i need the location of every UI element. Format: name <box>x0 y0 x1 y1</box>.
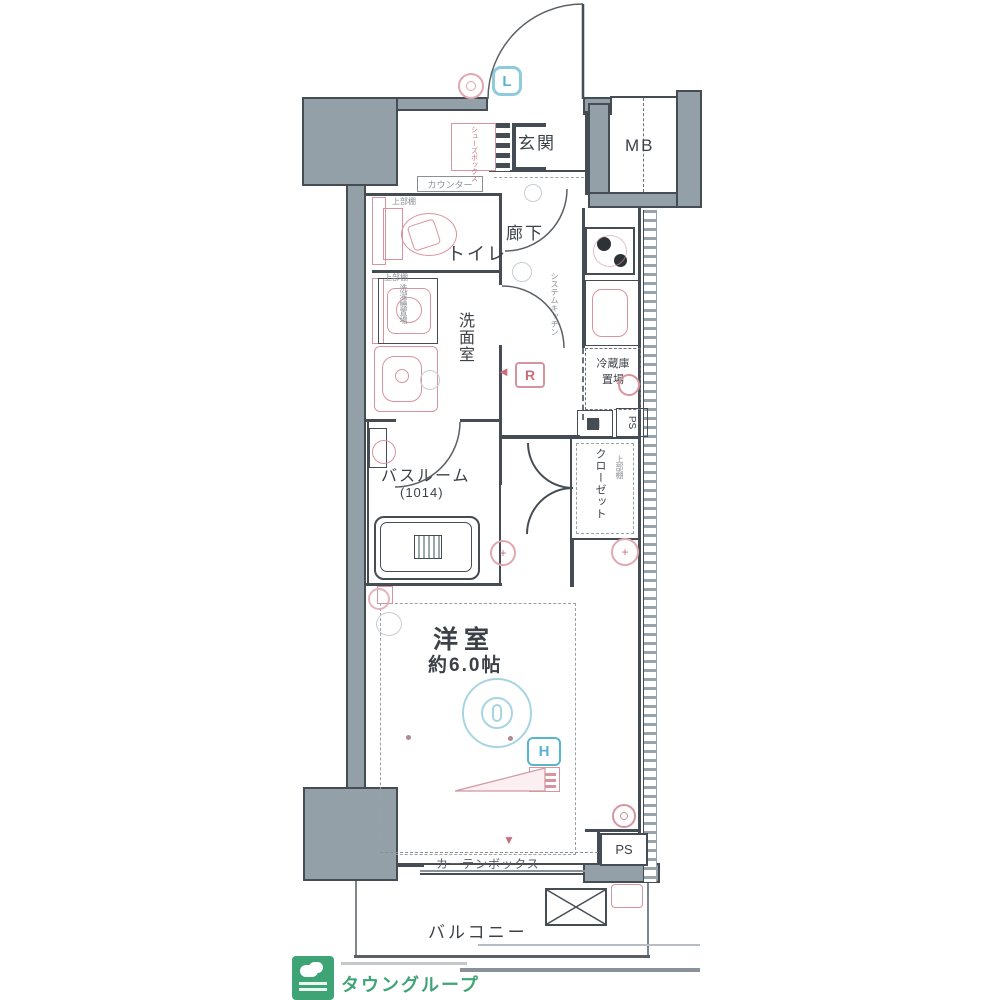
balcony-label: バルコニー <box>428 918 528 943</box>
system-kitchen-label: システムキッチン <box>549 272 560 352</box>
logo-text: タウングループ <box>341 971 480 997</box>
shoe-box: シューズボックス <box>451 123 496 171</box>
wall-genkan-right <box>585 111 588 195</box>
wall-closet-side <box>570 540 574 587</box>
counter-box: カウンター <box>417 176 483 192</box>
mb-label: MB <box>625 136 655 156</box>
door-jamb-stripes <box>496 123 510 171</box>
hatch-badge <box>611 884 643 908</box>
floorplan-canvas: MB 玄関 トイレ 廊下 洗面室 バスルーム (1014) クローゼット 上部棚… <box>0 0 1000 1000</box>
entrance-door-leaf-plan <box>512 123 546 171</box>
wall-closet-top-run <box>500 435 580 439</box>
logo-topline <box>341 962 467 965</box>
wall-mb-right <box>676 90 702 208</box>
toilet-shelf-label: 上部棚 <box>392 196 416 207</box>
balcony-right-rail <box>647 883 649 958</box>
floor-dot-2 <box>508 736 513 741</box>
knob-circle-hall <box>512 262 532 282</box>
genkan-step-dashed <box>494 177 584 178</box>
ceiling-rose-room <box>368 588 390 610</box>
shared-wall-hatch <box>643 210 657 882</box>
ps-bottom-box: PS <box>600 833 648 866</box>
curtain-box-label: カーテンボックス <box>436 855 540 872</box>
washer-label: 洗濯機置場 <box>398 284 409 340</box>
logo-mark <box>292 956 334 1000</box>
shower-icon <box>414 535 442 559</box>
washer-shelf-label: 上部棚 <box>384 272 408 283</box>
washroom-label: 洗面室 <box>452 312 476 363</box>
entry-symbol-ring <box>458 73 484 99</box>
remote-r-badge: R <box>515 362 545 388</box>
knob-circle-room <box>376 612 402 636</box>
balcony-outer-rail <box>460 968 700 972</box>
outlet-symbol-fridge <box>618 374 640 396</box>
bathroom-pink-circle <box>372 440 396 464</box>
counter-label: カウンター <box>427 178 472 191</box>
hatch-h-badge: H <box>527 737 561 766</box>
ceiling-rose-2: + <box>611 538 639 566</box>
balcony-bottom-rail <box>354 955 650 958</box>
wall-ps-corner-h <box>585 829 640 832</box>
toilet-tank <box>383 208 403 260</box>
knob-circle-washroom <box>420 370 440 390</box>
arrow-icon: ◄ <box>497 364 510 379</box>
shelf-box: 棚 <box>577 410 613 437</box>
fridge-label-1: 冷蔵庫 <box>586 355 640 371</box>
curtain-marker: ▼ <box>503 833 515 847</box>
knob-circle-genkan <box>524 184 542 202</box>
closet-door-arc-top <box>528 443 573 488</box>
ceiling-light-symbol <box>462 678 532 748</box>
bathtub <box>374 516 480 580</box>
outlet-symbol-ps <box>612 804 636 828</box>
closet-door-arc-bottom <box>527 488 573 534</box>
balcony-left-rail <box>355 881 357 958</box>
ps-top-box: PS <box>616 408 648 437</box>
light-l-badge: L <box>492 66 522 96</box>
wall-left-strip <box>346 184 366 790</box>
kitchen-sink-box <box>585 280 640 346</box>
ps-top-label: PS <box>627 416 638 429</box>
closet-box <box>570 437 640 540</box>
hallway-label: 廊下 <box>506 219 544 244</box>
toilet-label: トイレ <box>447 240 507 266</box>
stove-box <box>585 227 635 275</box>
ps-bottom-label: PS <box>615 842 632 857</box>
wall-top-left-pillar <box>302 97 398 186</box>
toilet-bowl <box>401 213 457 256</box>
balcony-outer-rail-2 <box>478 944 700 946</box>
ceiling-rose-1: + <box>490 540 516 566</box>
evacuation-hatch-box <box>545 888 607 926</box>
floor-dot-1 <box>406 735 411 740</box>
shoe-box-label: シューズボックス <box>469 126 479 170</box>
wall-toilet-top <box>366 193 502 196</box>
hatch-pink-box <box>529 767 560 792</box>
